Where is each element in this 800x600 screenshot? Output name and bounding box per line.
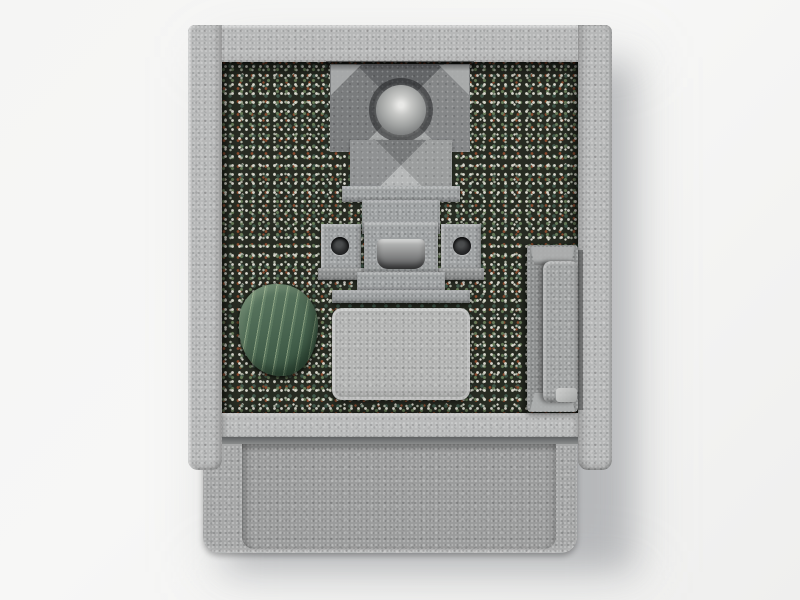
vase-hole-left bbox=[331, 237, 349, 255]
perimeter-frame-right bbox=[578, 25, 612, 470]
paving-slab bbox=[332, 308, 470, 400]
burner-recess-tray bbox=[377, 239, 425, 269]
stepping-stone bbox=[239, 284, 318, 376]
bench-seat-highlight bbox=[556, 388, 577, 402]
monument-base bbox=[332, 290, 470, 303]
monument-step-tier bbox=[357, 272, 445, 292]
platform-recess bbox=[242, 443, 556, 549]
bench-seat bbox=[543, 261, 579, 403]
render-canvas bbox=[0, 0, 800, 600]
frame-shadow-on-roof bbox=[326, 61, 474, 71]
perimeter-frame-left bbox=[188, 25, 222, 470]
monument-cap bbox=[350, 140, 452, 190]
ornament-sphere bbox=[376, 85, 426, 135]
vase-hole-right bbox=[453, 237, 471, 255]
step-front-face bbox=[222, 437, 578, 444]
bench-frame-gap-shadow bbox=[578, 250, 583, 410]
entrance-step bbox=[222, 413, 578, 437]
